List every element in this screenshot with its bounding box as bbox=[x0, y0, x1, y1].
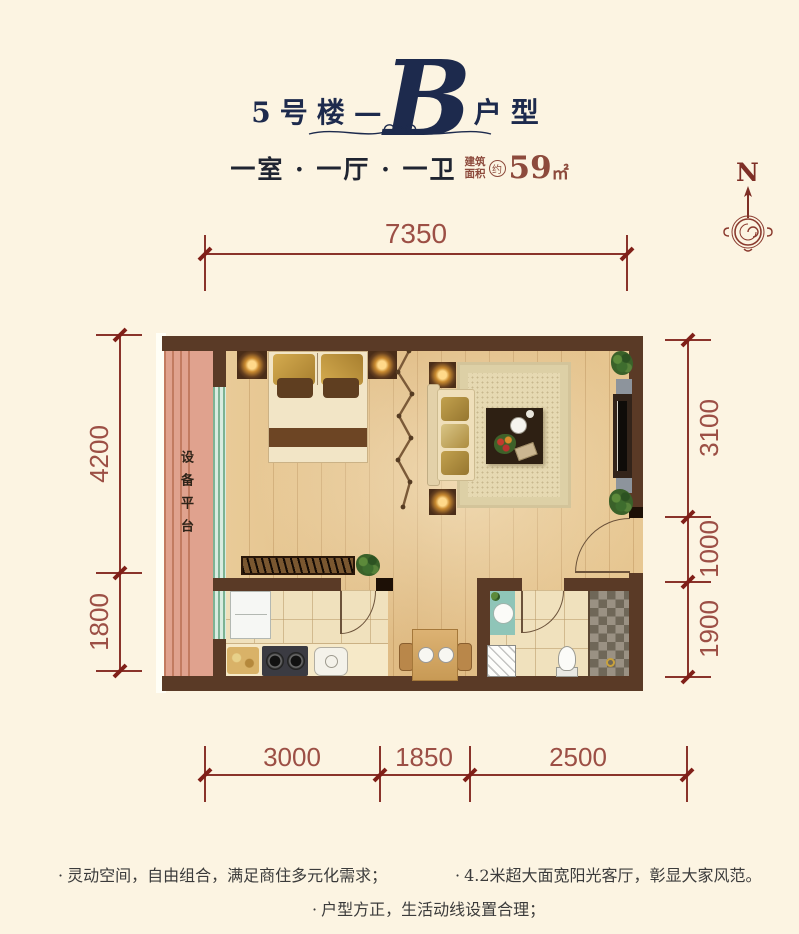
tv-screen bbox=[617, 401, 627, 471]
coffee-table-plate bbox=[510, 417, 527, 434]
dim-line-top bbox=[204, 253, 627, 255]
window-left bbox=[213, 387, 226, 639]
washing-machine bbox=[487, 645, 516, 677]
area-unit: ㎡ bbox=[552, 159, 569, 186]
bathroom-door-leaf bbox=[521, 591, 523, 633]
area-label: 建筑 面积 bbox=[465, 156, 486, 180]
kitchen-sink bbox=[314, 647, 348, 676]
feature-item-1: ·灵动空间，自由组合，满足商住多元化需求； bbox=[58, 862, 387, 886]
compass-icon bbox=[717, 184, 779, 254]
dining-chair-right bbox=[457, 643, 472, 671]
flourish-divider-icon bbox=[305, 122, 495, 142]
dim-label-right-3: 1900 bbox=[695, 589, 723, 669]
dim-line-left bbox=[119, 335, 121, 673]
wall-left-lower bbox=[213, 639, 226, 691]
stove bbox=[262, 646, 308, 676]
sofa-cushion-1 bbox=[441, 397, 469, 421]
dining-plate-left bbox=[418, 647, 434, 663]
zigzag-divider bbox=[394, 350, 420, 510]
bench-plant bbox=[356, 554, 380, 576]
entry-door-leaf bbox=[575, 571, 630, 573]
bed bbox=[268, 351, 368, 463]
wall-left-upper bbox=[213, 336, 226, 387]
bedroom-bench bbox=[241, 556, 355, 575]
subtitle: 一室 · 一厅 · 一卫 建筑 面积 约 59 ㎡ bbox=[0, 150, 799, 186]
dim-line-bottom bbox=[204, 774, 688, 776]
side-table-lamp-bottom bbox=[429, 489, 456, 515]
nightstand-lamp-right bbox=[367, 351, 397, 379]
platform-label: 设备平台 bbox=[176, 450, 195, 590]
bed-pillow-brown-left bbox=[277, 378, 313, 398]
dim-ext-top-left bbox=[204, 235, 206, 291]
coffee-table bbox=[486, 408, 543, 464]
stove-burner-right bbox=[287, 652, 305, 670]
dim-ext-top-right bbox=[626, 235, 628, 291]
dim-label-bottom-3: 2500 bbox=[538, 743, 618, 771]
wall-bottom bbox=[162, 676, 643, 691]
area-approx-badge: 约 bbox=[489, 160, 506, 177]
feature-item-3: ·户型方正，生活动线设置合理； bbox=[312, 896, 545, 920]
feature-text-2: 4.2米超大面宽阳光客厅，彰显大家风范。 bbox=[464, 866, 761, 885]
bath-basin bbox=[493, 603, 514, 624]
dim-label-left-1: 4200 bbox=[85, 414, 113, 494]
dim-label-bottom-1: 3000 bbox=[252, 743, 332, 771]
wall-top bbox=[162, 336, 643, 351]
dim-line-right bbox=[687, 340, 689, 678]
fridge bbox=[230, 591, 271, 639]
feature-text-1: 灵动空间，自由组合，满足商住多元化需求； bbox=[67, 866, 387, 885]
plant-right-lower bbox=[609, 489, 633, 515]
bath-plant bbox=[491, 592, 500, 601]
bullet-icon: · bbox=[58, 866, 63, 885]
kitchen-door-leaf bbox=[340, 591, 342, 634]
dim-label-left-2: 1800 bbox=[85, 582, 113, 662]
dim-label-bottom-2: 1850 bbox=[384, 743, 464, 771]
area-value: 59 bbox=[509, 153, 552, 184]
coffee-table-book bbox=[514, 442, 537, 461]
dim-label-right-2: 1000 bbox=[695, 509, 723, 589]
bed-pillow-brown-right bbox=[323, 378, 359, 398]
bullet-icon: · bbox=[455, 866, 460, 885]
plant-top-right bbox=[611, 351, 633, 375]
coffee-table-cup bbox=[526, 410, 534, 418]
toilet bbox=[555, 646, 579, 678]
bed-blanket-band bbox=[269, 428, 367, 447]
cutting-board bbox=[227, 647, 259, 674]
shower-drain bbox=[606, 658, 615, 667]
coffee-table-flowers bbox=[494, 434, 516, 454]
sofa-cushion-3 bbox=[441, 451, 469, 475]
feature-text-3: 户型方正，生活动线设置合理； bbox=[321, 900, 545, 919]
sink-drain bbox=[325, 655, 338, 668]
wall-bath-top-right bbox=[564, 578, 643, 591]
toilet-bowl bbox=[558, 646, 576, 671]
feature-item-2: ·4.2米超大面宽阳光客厅，彰显大家风范。 bbox=[455, 862, 762, 886]
wall-kitchen-top bbox=[213, 578, 341, 591]
stove-burner-left bbox=[266, 652, 284, 670]
bed-center-line bbox=[317, 353, 318, 385]
sofa-cushion-2 bbox=[441, 424, 469, 448]
dim-label-right-1: 3100 bbox=[695, 388, 723, 468]
area-label-line2: 面积 bbox=[465, 168, 486, 180]
bath-vanity bbox=[490, 591, 515, 635]
tv-speaker-top bbox=[616, 379, 632, 394]
sofa bbox=[427, 384, 475, 486]
dim-label-top: 7350 bbox=[366, 220, 466, 248]
floorplan-poster: 5号楼 — B 户型 一室 · 一厅 · 一卫 建筑 面积 约 59 ㎡ N bbox=[0, 0, 799, 934]
nightstand-lamp-left bbox=[237, 351, 267, 379]
compass-north-label: N bbox=[736, 158, 759, 187]
dining-plate-right bbox=[438, 647, 454, 663]
fridge-divider bbox=[235, 614, 267, 615]
subtitle-rooms: 一室 · 一厅 · 一卫 bbox=[230, 150, 456, 186]
bullet-icon: · bbox=[312, 900, 317, 919]
kitchen-door-jamb bbox=[376, 578, 393, 591]
dining-table bbox=[412, 629, 458, 681]
area-label-line1: 建筑 bbox=[465, 156, 486, 168]
